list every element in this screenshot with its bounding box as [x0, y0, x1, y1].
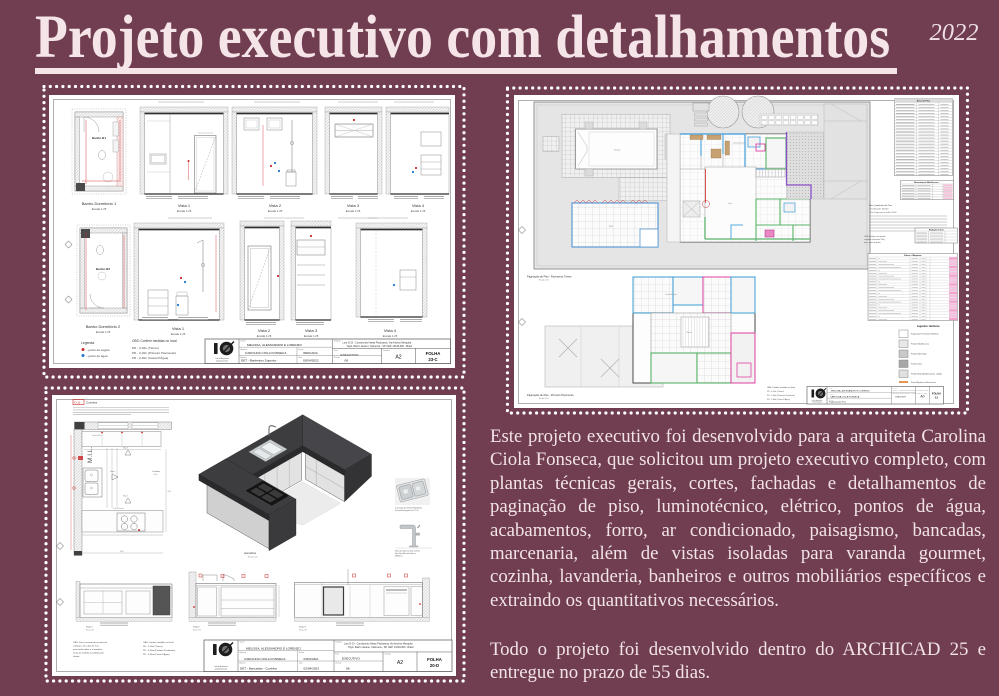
svg-text:EXECUTIVO: EXECUTIVO	[342, 656, 360, 660]
svg-text:PD - 3,10m (Primeiro Pavimento: PD - 3,10m (Primeiro Pavimento)	[132, 351, 176, 355]
svg-text:Togni, Bairro Jacareí, Cabreúv: Togni, Bairro Jacareí, Cabreúva - SP, CE…	[347, 345, 413, 348]
svg-text:Vista 1: Vista 1	[86, 626, 93, 629]
svg-text:20-D: 20-D	[430, 663, 439, 668]
svg-text:PD - 4,10m (Térreo): PD - 4,10m (Térreo)	[767, 390, 784, 393]
svg-text:D-11: D-11	[75, 400, 81, 404]
svg-text:Pedras Não Fulget: Pedras Não Fulget	[911, 353, 927, 356]
svg-text:FOLHA: FOLHA	[932, 392, 941, 396]
svg-text:02/04/2022: 02/04/2022	[303, 359, 319, 363]
svg-text:DET - Banheiros Superior: DET - Banheiros Superior	[241, 359, 276, 363]
svg-text:EXECUTIVO: EXECUTIVO	[341, 353, 359, 357]
svg-text:Legenda: Legenda	[81, 341, 94, 345]
svg-text:Endereço: Endereço	[336, 642, 343, 644]
svg-text:Vista 3: Vista 3	[299, 626, 306, 629]
svg-text:Tamanho: Tamanho	[383, 350, 390, 352]
svg-text:EXECUTIVO: EXECUTIVO	[896, 396, 907, 398]
svg-text:Escala 1:50: Escala 1:50	[539, 280, 548, 282]
svg-text:Vista 2: Vista 2	[258, 328, 271, 333]
svg-text:Área de Piso: Área de Piso	[917, 99, 931, 102]
svg-text:Paginação Porcelanato 90x90cm: Paginação Porcelanato 90x90cm	[911, 333, 939, 336]
svg-text:Pedras Vania: Pedras Vania	[911, 363, 923, 366]
svg-text:OBS: Conferir medidas no local: OBS: Conferir medidas no local	[143, 641, 174, 644]
svg-text:Vista 4: Vista 4	[412, 203, 425, 208]
svg-text:A0: A0	[920, 394, 924, 398]
svg-text:CAROLINA CIOLA FONSECA: CAROLINA CIOLA FONSECA	[830, 395, 860, 398]
svg-text:Cozinha: Cozinha	[86, 400, 97, 404]
svg-text:Closet: Closet	[686, 331, 692, 334]
svg-text:Escala 1:25: Escala 1:25	[171, 332, 186, 336]
svg-text:sugestiva (alvenaria 15th): sugestiva (alvenaria 15th)	[864, 238, 885, 241]
svg-text:MELISSA, ALESSANDRO E LORENZO: MELISSA, ALESSANDRO E LORENZO	[246, 646, 301, 650]
svg-text:Escala 1:50: Escala 1:50	[539, 398, 548, 400]
svg-text:PD - 3,10m (Primeiro Pavimento: PD - 3,10m (Primeiro Pavimento)	[767, 394, 795, 397]
svg-text:Banho Dormitório 1: Banho Dormitório 1	[82, 201, 117, 206]
svg-text:Vista 2: Vista 2	[269, 203, 282, 208]
svg-text:- Piso Projeto piso e vinílico: - Piso Projeto piso e vinílico 92x92	[869, 211, 896, 214]
svg-text:02/04/2023: 02/04/2023	[304, 667, 320, 671]
svg-text:Escala: Escala	[299, 652, 304, 654]
svg-text:Escala 1:25: Escala 1:25	[299, 630, 307, 632]
svg-text:PD - 2,40m (Caixa D’Água): PD - 2,40m (Caixa D’Água)	[143, 653, 170, 656]
svg-text:para cortes de pedra: para cortes de pedra	[864, 241, 881, 244]
svg-text:Vista 2: Vista 2	[193, 626, 200, 629]
svg-text:08: 08	[346, 667, 350, 671]
svg-text:M.I.L.: M.I.L.	[87, 447, 94, 463]
svg-text:Vista 1: Vista 1	[172, 326, 185, 331]
svg-text:Endereço: Endereço	[334, 341, 341, 343]
svg-text:Vista 3: Vista 3	[347, 203, 360, 208]
svg-text:23-C: 23-C	[428, 357, 437, 362]
svg-text:- ponto de esgoto: - ponto de esgoto	[87, 348, 111, 352]
svg-text:OBS: Medidas com parede: OBS: Medidas com parede	[864, 236, 886, 238]
svg-text:Vidros e Máquinas: Vidros e Máquinas	[904, 255, 923, 257]
svg-text:Painel Ripado em Marcenaria: Painel Ripado em Marcenaria	[911, 381, 937, 384]
svg-text:Paginação de Piso - Primeiro P: Paginação de Piso - Primeiro Pavimento	[527, 393, 574, 397]
svg-text:CAROLINA CIOLA FONSECA: CAROLINA CIOLA FONSECA	[245, 351, 287, 355]
svg-text:Obs: Quantitativo de Piso: Obs: Quantitativo de Piso	[869, 204, 893, 207]
svg-text:Fase: Fase	[336, 653, 340, 655]
svg-text:Paginação de Piso - Pavimento: Paginação de Piso - Pavimento Térreo	[527, 275, 572, 279]
svg-text:Lote D-13 - Condomínio Haras P: Lote D-13 - Condomínio Haras Pindorama, …	[343, 342, 412, 345]
svg-text:4,46: 4,46	[120, 551, 123, 553]
svg-text:exato do modelo escolhido: exato do modelo escolhido pelo	[73, 652, 105, 655]
svg-text:FOLHA: FOLHA	[426, 351, 441, 356]
svg-text:Banho B2: Banho B2	[96, 267, 110, 271]
svg-text:Pedras Meda Antiderrapante + A: Pedras Meda Antiderrapante + Ardós	[911, 373, 942, 376]
svg-text:MELISSA, ALESSANDRO E LORENZO: MELISSA, ALESSANDRO E LORENZO	[831, 390, 870, 393]
svg-text:PD - 3,10m (Térreo): PD - 3,10m (Térreo)	[132, 346, 159, 350]
svg-text:PD - 3,10m (Térreo): PD - 3,10m (Térreo)	[143, 645, 163, 648]
svg-text:Banho Dormitório 2: Banho Dormitório 2	[86, 324, 121, 329]
svg-text:Vista 1: Vista 1	[123, 495, 128, 498]
svg-text:Suíte Máster: Suíte Máster	[665, 293, 677, 296]
svg-text:Escala 1:25: Escala 1:25	[411, 209, 426, 213]
svg-text:INDICADA: INDICADA	[304, 657, 320, 661]
svg-text:DET - Bancadas - Cozinha: DET - Bancadas - Cozinha	[240, 667, 277, 671]
svg-text:cliente.: cliente.	[73, 655, 80, 658]
svg-text:Escala 1:20: Escala 1:20	[248, 557, 257, 559]
svg-text:3,05: 3,05	[168, 491, 171, 493]
svg-text:Escala 1:25: Escala 1:25	[92, 207, 107, 211]
svg-text:PD - 2,40m (Caixa D'Água): PD - 2,40m (Caixa D'Água)	[132, 356, 168, 360]
svg-text:A2: A2	[397, 660, 403, 666]
svg-text:PD - 2,80m (Caixa D’Água): PD - 2,80m (Caixa D’Água)	[767, 398, 790, 401]
svg-text:MELISSA, ALESSANDRO E LORENZO: MELISSA, ALESSANDRO E LORENZO	[247, 343, 302, 347]
svg-text:OBS: Conferir medidas no local: OBS: Conferir medidas no local	[132, 339, 177, 343]
svg-text:Escala 1:25: Escala 1:25	[268, 209, 283, 213]
svg-text:Escala 1:25: Escala 1:25	[177, 209, 192, 213]
svg-text:Pedras Não Atacama: Pedras Não Atacama	[911, 343, 930, 346]
svg-text:Escala 1:25: Escala 1:25	[193, 630, 201, 632]
svg-text:FOLHA: FOLHA	[427, 657, 442, 662]
svg-text:A2: A2	[395, 354, 401, 360]
svg-text:Cozinha: Cozinha	[152, 471, 161, 473]
svg-text:08: 08	[345, 359, 349, 363]
svg-text:OBS: Conferir medidas no local: OBS: Conferir medidas no local	[767, 387, 796, 389]
svg-text:Sala: Sala	[728, 203, 733, 205]
svg-text:Fase: Fase	[334, 350, 338, 352]
svg-text:PD - 3,10m (Primeiro Pavimento: PD - 3,10m (Primeiro Pavimento)	[143, 649, 175, 652]
svg-text:Escala 1:25: Escala 1:25	[96, 330, 111, 334]
svg-text:Escala 1:25: Escala 1:25	[383, 334, 398, 338]
svg-text:Paginação de Piso: Paginação de Piso	[829, 401, 847, 404]
svg-text:Banho B1: Banho B1	[92, 136, 106, 140]
svg-text:Legenda / Hachuras: Legenda / Hachuras	[917, 325, 940, 328]
svg-text:Lote D-13 - Condomínio Haras P: Lote D-13 - Condomínio Haras Pindorama, …	[344, 643, 413, 646]
svg-text:Vista 3: Vista 3	[305, 328, 318, 333]
svg-text:Tamanho: Tamanho	[385, 653, 392, 655]
svg-text:Tampa: Tampa	[614, 150, 621, 152]
svg-text:& lighting design: & lighting design	[215, 667, 227, 670]
svg-text:Isométrica: Isométrica	[244, 551, 257, 555]
svg-text:Vista 3: Vista 3	[123, 447, 128, 450]
svg-text:Escala 1:25: Escala 1:25	[346, 209, 361, 213]
svg-text:4885014 C: 4885014 C	[395, 556, 404, 558]
svg-text:CAROLINA CIOLA FONSECA: CAROLINA CIOLA FONSECA	[244, 657, 286, 661]
svg-text:Vista 4: Vista 4	[384, 328, 397, 333]
svg-text:Togni, Bairro Jacareí, Cabreúv: Togni, Bairro Jacareí, Cabreúva - SP, CE…	[348, 646, 414, 649]
svg-text:INDICADA: INDICADA	[303, 351, 319, 355]
svg-text:Vista 2: Vista 2	[110, 470, 115, 473]
svg-text:Escala 1:25: Escala 1:25	[304, 334, 319, 338]
svg-text:& lighting design: & lighting design	[216, 359, 228, 362]
svg-text:OBS: Para a recorte de encaixe: OBS: Para a recorte de encaixe do	[73, 641, 108, 644]
svg-text:Escala 1:25: Escala 1:25	[257, 334, 272, 338]
svg-text:Escala 1:25: Escala 1:25	[86, 630, 94, 632]
svg-text:- ponto de água: - ponto de água	[87, 354, 108, 358]
svg-text:Endereço: Endereço	[893, 388, 898, 390]
svg-text:Revestimento Não-Escorre...: Revestimento Não-Escorre...	[914, 181, 940, 184]
svg-text:cooktop e da cuba de inox: cooktop e da cuba de inox,	[73, 645, 100, 648]
svg-text:Vista 1: Vista 1	[178, 203, 191, 208]
svg-text:- Piso Elevado: 38x74x4: - Piso Elevado: 38x74x4	[869, 209, 888, 211]
svg-text:precisarão saber o o taman: precisarão saber o o tamanho	[73, 648, 103, 651]
